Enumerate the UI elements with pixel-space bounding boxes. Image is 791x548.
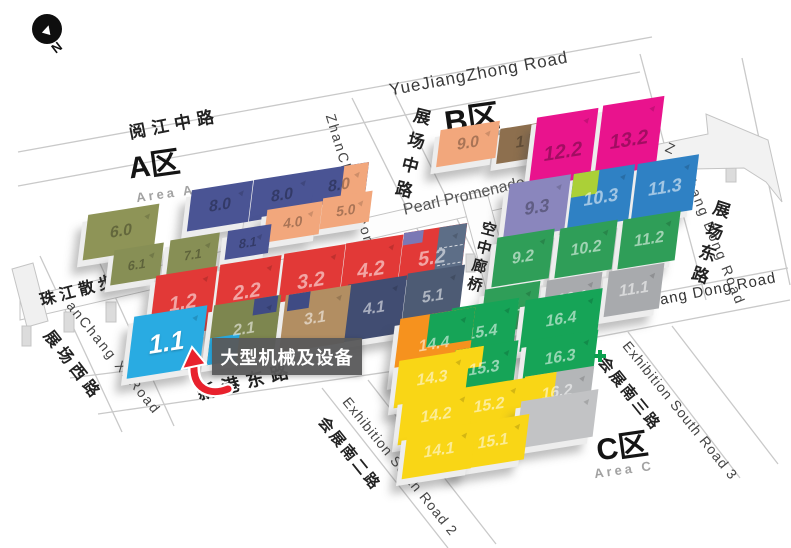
hall-label: 5.1 [421, 286, 445, 308]
hall-label: 15.1 [476, 430, 509, 453]
hall-label: 7.1 [183, 245, 203, 263]
hall-label: 9.2 [511, 247, 535, 269]
hall-color-patch [403, 230, 425, 245]
hall-11-3[interactable]: 11.3 [631, 154, 699, 219]
hall-10-2[interactable]: 10.2 [554, 220, 617, 279]
hall-8-1[interactable]: 8.1 [224, 224, 271, 260]
hall-11-1[interactable]: 11.1 [604, 263, 665, 317]
hall-label: 4.0 [282, 212, 303, 232]
hall-label: 16.4 [544, 308, 577, 331]
hall-label: 9.0 [456, 133, 480, 155]
hall-label: 9.3 [523, 194, 550, 220]
hall-label: 14.3 [415, 367, 448, 390]
hall-label: 3.1 [303, 308, 327, 330]
hall-label: 14.1 [422, 439, 455, 462]
hall-11-2[interactable]: 11.2 [617, 211, 680, 270]
hall-label: 6.0 [109, 221, 133, 243]
exhibition-map: ▲ N A区 Area A B区 Area B C区 Area C 阅江中路 Y… [0, 0, 791, 548]
hall-label: 6.1 [127, 255, 147, 273]
hall-label: 10.3 [582, 183, 619, 210]
hall-1-1-highlighted[interactable]: 1.1 [127, 305, 208, 379]
hall-label: 13.2 [608, 125, 649, 155]
hall-color-patch [252, 295, 278, 316]
hall-label: 15.3 [467, 357, 500, 380]
halls-layer: 6.08.08.08.05.04.08.17.16.15.24.23.22.21… [0, 0, 791, 548]
hall-9-0[interactable]: 9.0 [436, 121, 500, 168]
hall-color-patch [287, 291, 311, 311]
callout-large-machinery: 大型机械及设备 [212, 338, 362, 375]
hall-label: 4.1 [362, 298, 386, 320]
hall-9-2[interactable]: 9.2 [491, 229, 554, 288]
hall-label: 11.2 [633, 228, 665, 251]
hall-label: 10.2 [569, 237, 602, 260]
green-cross-marker-icon [594, 350, 606, 362]
hall-label: 8.1 [238, 233, 258, 251]
hall-8-0-west[interactable]: 8.0 [187, 180, 253, 231]
hall-label: 16.3 [543, 346, 576, 369]
hall-label: 15.2 [472, 394, 505, 417]
hall-label: 11.1 [618, 278, 650, 301]
hall-label: 8.0 [208, 195, 232, 217]
hall-label: 1 [514, 133, 525, 153]
hall-label: 5.0 [335, 200, 356, 220]
hall-label: 14.2 [419, 404, 452, 427]
hall-label: 8.0 [270, 185, 294, 207]
hall-label: 11.3 [647, 173, 683, 200]
hall-label: 12.2 [542, 137, 583, 167]
hall-label: 1.1 [147, 323, 187, 361]
